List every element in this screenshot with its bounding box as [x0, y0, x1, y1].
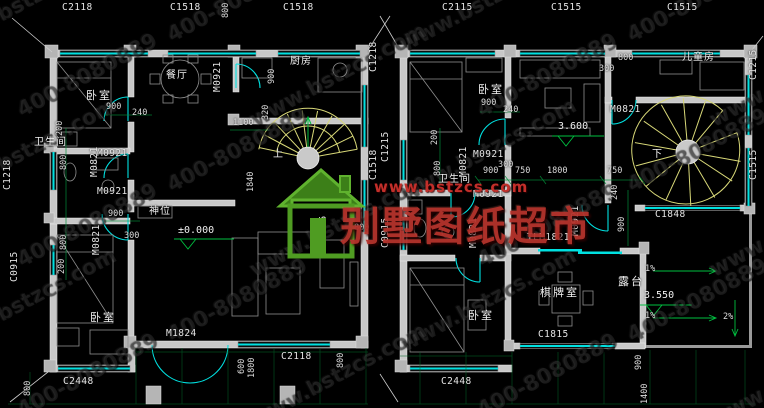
window-c2448-bottom — [58, 366, 130, 372]
window-c2118-bottom — [238, 342, 330, 348]
bed-bottom-right — [410, 268, 486, 352]
sitting-room-furniture — [520, 60, 600, 136]
window-c0915-left — [401, 218, 407, 250]
right-plan — [380, 16, 763, 404]
terrace-parapet-bottom — [646, 345, 752, 348]
door-bedroom3 — [479, 119, 505, 145]
window-c2118-top — [60, 51, 148, 57]
bed-bottom-left — [57, 235, 128, 354]
dining-table — [150, 55, 211, 103]
dim-lines-right — [440, 112, 645, 246]
floorplan-canvas: www.bstzcs.com400-8080889www.bstzcs.com4… — [0, 0, 764, 408]
door-bedroom1 — [104, 97, 128, 121]
door-children-m0821 — [612, 100, 636, 124]
game-table — [539, 272, 593, 326]
dim-lines-left — [66, 115, 270, 280]
slope-arrows — [653, 268, 738, 336]
window-c1515-top2 — [632, 51, 720, 57]
door-bedroom4 — [456, 258, 480, 282]
window-c1518-right — [362, 85, 368, 147]
window-c1515-right — [746, 148, 752, 206]
door-kitchen — [236, 64, 260, 88]
living-room-sofa — [232, 232, 358, 316]
door-hall-m0921 — [582, 205, 608, 231]
window-c1515-top1 — [520, 51, 605, 57]
level-marker-3550 — [640, 305, 692, 315]
spiral-staircase-left — [259, 108, 357, 169]
window-c1215-right — [362, 180, 368, 232]
porch-grid-left — [8, 348, 368, 404]
left-plan — [8, 16, 390, 404]
sliding-door-tlm1821 — [538, 249, 622, 254]
bed-top-right — [410, 58, 502, 132]
door-entry-m1824 — [152, 345, 228, 383]
window-c1215-left — [401, 140, 407, 180]
window-c0915-left — [51, 245, 57, 275]
window-c2115-top — [410, 51, 495, 57]
level-marker-0000 — [174, 239, 234, 249]
window-c1518-top1 — [168, 51, 256, 57]
porch-grid-right — [400, 350, 756, 404]
window-c2448-right — [410, 366, 498, 372]
terrace-parapet-right — [749, 212, 752, 348]
window-c1518-top2 — [278, 51, 360, 57]
window-c1215-right — [746, 75, 752, 135]
spiral-staircase-right — [632, 96, 741, 206]
bed-top-left — [57, 62, 111, 146]
window-c1815 — [520, 344, 615, 349]
window-c1848 — [645, 206, 740, 211]
shrine-cabinet — [138, 206, 172, 218]
level-marker-3600 — [552, 136, 604, 146]
bathroom-fixtures-right — [408, 200, 454, 238]
window-c1218-left — [51, 152, 57, 190]
children-room-bed — [660, 60, 744, 90]
floorplan-drawing — [0, 0, 764, 408]
bathroom-fixtures-left — [64, 158, 118, 192]
door-bathroom-right — [451, 193, 475, 217]
